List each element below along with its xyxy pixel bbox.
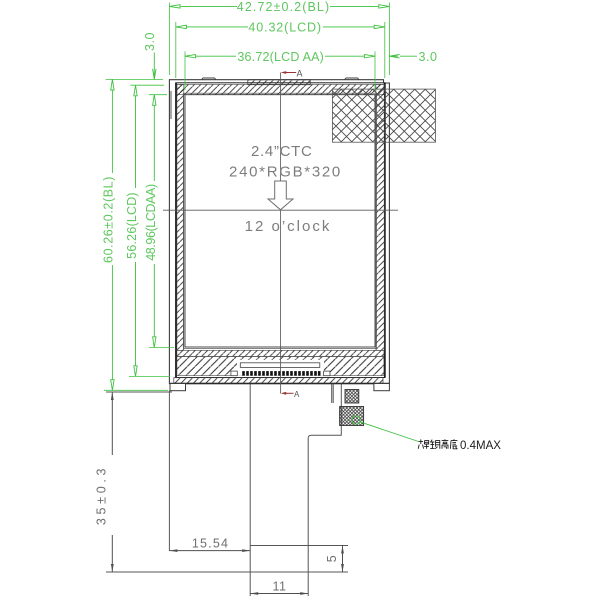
svg-text:11: 11	[273, 580, 287, 594]
svg-text:56.26(LCD): 56.26(LCD)	[125, 192, 139, 259]
svg-text:240*RGB*320: 240*RGB*320	[229, 164, 342, 181]
svg-text:0.4MAX: 0.4MAX	[460, 440, 501, 452]
svg-text:12 o’clock: 12 o’clock	[245, 218, 332, 235]
svg-text:36.72(LCD AA): 36.72(LCD AA)	[237, 50, 324, 64]
svg-text:A: A	[294, 390, 300, 399]
svg-text:A: A	[297, 69, 303, 79]
svg-text:35±0.3: 35±0.3	[95, 465, 109, 525]
svg-text:15.54: 15.54	[192, 537, 229, 551]
svg-text:3.0: 3.0	[143, 32, 157, 51]
svg-text:42.72±0.2(BL): 42.72±0.2(BL)	[237, 0, 330, 14]
svg-text:5: 5	[325, 555, 339, 562]
svg-text:2.4”CTC: 2.4”CTC	[251, 143, 313, 160]
svg-text:40.32(LCD): 40.32(LCD)	[248, 21, 322, 35]
svg-text:60.26±0.2(BL): 60.26±0.2(BL)	[102, 176, 116, 263]
svg-text:48.96(LCDAA): 48.96(LCDAA)	[144, 184, 158, 261]
svg-text:3.0: 3.0	[419, 50, 438, 64]
